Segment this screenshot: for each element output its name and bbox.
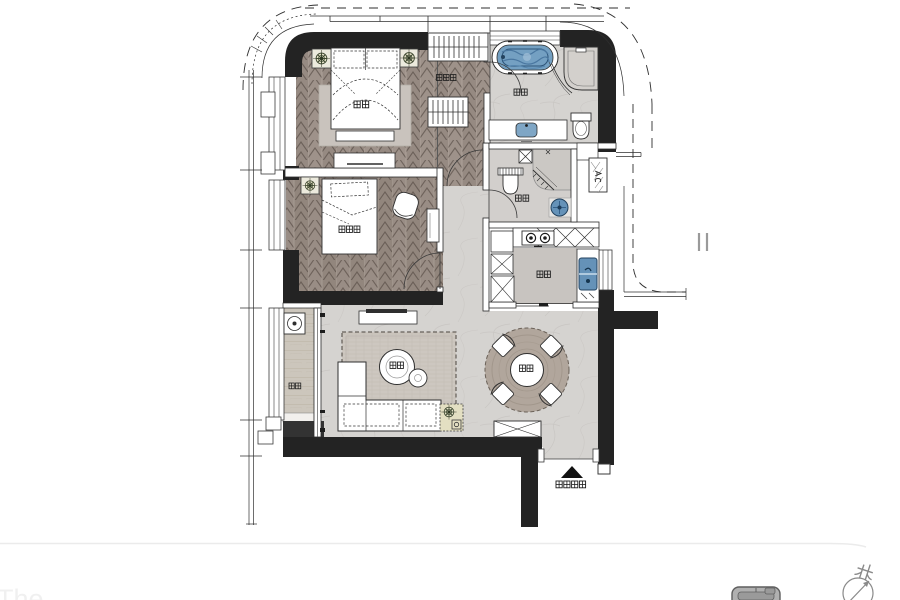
svg-text:The: The [0,584,44,600]
